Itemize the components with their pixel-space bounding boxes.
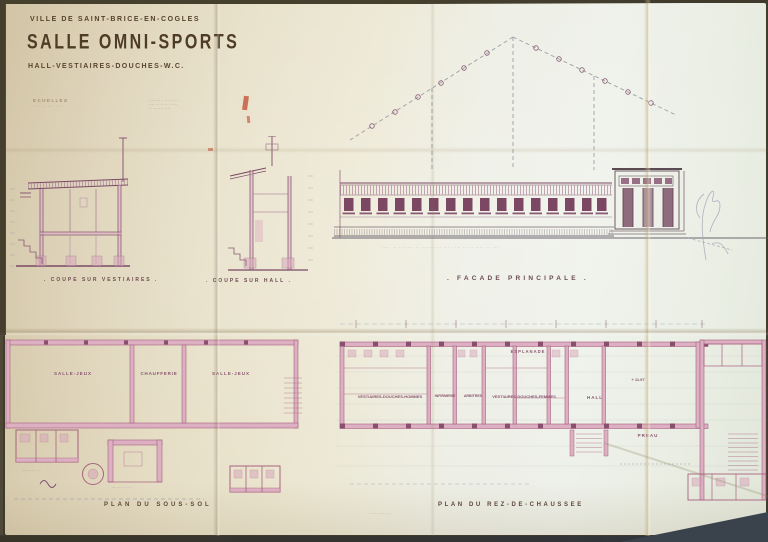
sous-sol-room-label: SALLE-JEUX: [192, 371, 270, 376]
rdc-hall-label: HALL: [580, 395, 610, 400]
caption-coupe-vestiaires: . COUPE SUR VESTIAIRES .: [44, 277, 158, 283]
stamp-line: ·· ······· ····: [149, 107, 179, 111]
title-subtitle: HALL-VESTIAIRES-DOUCHES-W.C.: [28, 63, 185, 70]
rdc-dims-note: ·· ··· ·· ···· ·· ···: [370, 512, 391, 516]
facade-note: ···· ·· ······· ·· ········· ··· ···· ··…: [382, 246, 499, 250]
rdc-room-label: VESTIAIRES-DOUCHES-FEMMES: [486, 394, 562, 399]
sous-sol-note: ···· ····· ·· ····: [112, 486, 131, 490]
window-band: [343, 198, 609, 214]
scales-note: ··· ·· ··· ···: [33, 105, 63, 109]
architect-stamp: ········ · ·· ······· ···· ·· ······ ···…: [149, 99, 179, 112]
facade-principale-drawing: [332, 22, 768, 270]
coupe-hall-drawing: [222, 136, 314, 288]
rdc-level-label: + 11.97: [618, 377, 658, 382]
sous-sol-note: ····· ········ ···: [22, 469, 41, 473]
photo-edge-left-upper: [0, 0, 6, 335]
rdc-room-label: ARBITRES: [460, 394, 486, 398]
sous-sol-room-label: SALLE-JEUX: [38, 371, 108, 376]
sous-sol-room-label: CHAUFFERIE: [136, 371, 182, 376]
photo-edge-top: [0, 0, 768, 4]
photo-edge-left-lower: [0, 335, 3, 535]
red-crayon-mark: [247, 116, 251, 123]
rdc-esplanade-label: ESPLANADE: [498, 349, 558, 354]
photo-of-architectural-drawing: VILLE DE SAINT-BRICE-EN-COGLES SALLE OMN…: [0, 0, 768, 542]
coupe-vestiaires-drawing: [10, 136, 140, 284]
caption-plan-sous-sol: PLAN DU SOUS-SOL: [104, 502, 212, 508]
plan-sous-sol-drawing: [4, 334, 316, 506]
caption-coupe-hall: . COUPE SUR HALL .: [206, 278, 292, 284]
rdc-preau-label: PREAU: [630, 433, 666, 438]
scales-label: ECHELLES: [33, 98, 69, 103]
rdc-room-label: INFIRMERIE: [432, 394, 458, 398]
caption-facade: . FACADE PRINCIPALE .: [447, 275, 589, 282]
rdc-room-label: VESTIAIRES-DOUCHES-HOMMES: [350, 394, 430, 399]
title-city: VILLE DE SAINT-BRICE-EN-COGLES: [30, 16, 200, 23]
tree-sketch: [697, 191, 728, 260]
plan-rdc-drawing: [330, 334, 768, 506]
title-main: SALLE OMNI-SPORTS: [27, 31, 239, 55]
caption-plan-rdc: PLAN DU REZ-DE-CHAUSSEE: [438, 502, 584, 508]
red-crayon-mark: [208, 148, 213, 151]
rdc-dimension-strip: [336, 316, 716, 330]
